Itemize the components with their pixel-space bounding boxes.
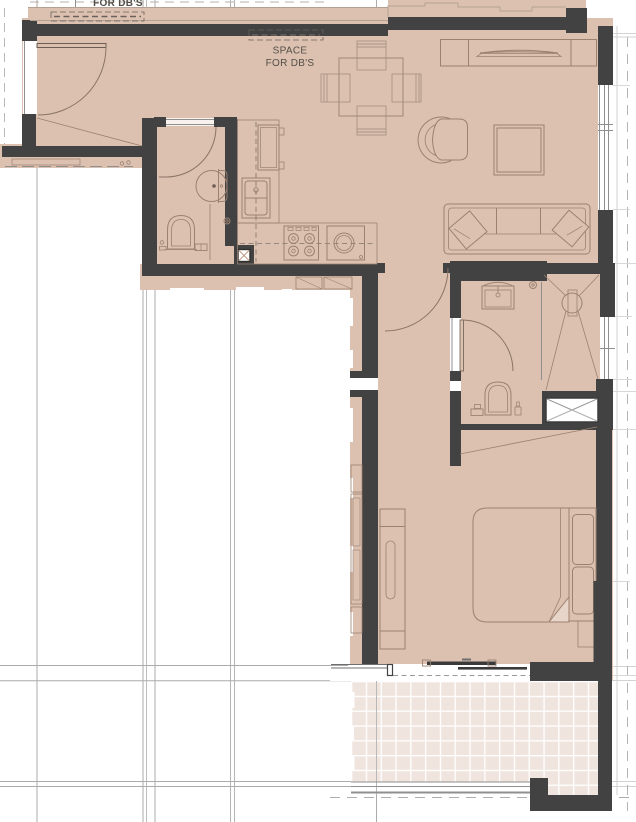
svg-text:FOR DB'S: FOR DB'S [266, 58, 315, 69]
svg-text:SPACE: SPACE [273, 46, 308, 57]
svg-text:FOR DB'S: FOR DB'S [93, 0, 143, 9]
